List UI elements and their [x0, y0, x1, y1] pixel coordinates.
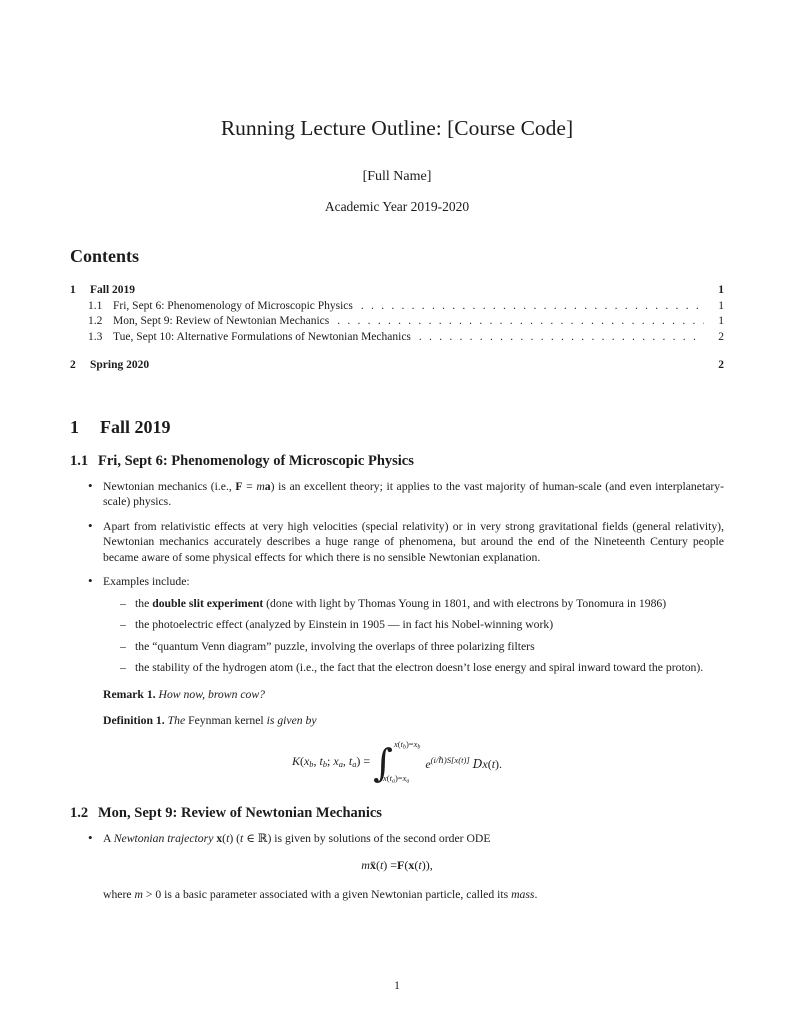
toc-entry-label[interactable]: Spring 2020 [90, 358, 149, 374]
bullet-item: A Newtonian trajectory x(t) (t ∈ ℝ) is g… [70, 831, 724, 847]
integral-upper-limit: x(tb)=xb [394, 739, 420, 752]
toc-entry-number: 1.2 [88, 314, 113, 330]
document-page: Running Lecture Outline: [Course Code] [… [0, 0, 794, 1028]
definition-label: Definition 1. [103, 714, 165, 727]
toc-entry-label[interactable]: Tue, Sept 10: Alternative Formulations o… [113, 330, 411, 346]
sub-bullet-item: the “quantum Venn diagram” puzzle, invol… [70, 639, 724, 655]
integral-limits: x(tb)=xb x(ta)=xa [394, 739, 420, 787]
subsection-heading-1-1: 1.1Fri, Sept 6: Phenomenology of Microsc… [70, 452, 724, 470]
remark-label: Remark 1. [103, 688, 156, 701]
toc-entry-page: 2 [710, 330, 724, 346]
bullet-item: Examples include: [70, 574, 724, 590]
toc-entry-number: 2 [70, 358, 90, 374]
section-title: Fall 2019 [100, 417, 171, 437]
feynman-kernel-formula: K(xb, tb; xa, ta) = ∫ x(tb)=xb x(ta)=xa … [70, 739, 724, 787]
sub-bullet-item: the double slit experiment (done with li… [70, 596, 724, 612]
subsection-number: 1.2 [70, 804, 98, 822]
toc-entry-1-3[interactable]: 1.3 Tue, Sept 10: Alternative Formulatio… [70, 330, 724, 346]
document-date: Academic Year 2019-2020 [70, 199, 724, 215]
bullet-item: Newtonian mechanics (i.e., F = ma) is an… [70, 479, 724, 510]
toc-entry-label[interactable]: Fri, Sept 6: Phenomenology of Microscopi… [113, 299, 353, 315]
bullet-item: Apart from relativistic effects at very … [70, 519, 724, 566]
page-number: 1 [0, 980, 794, 992]
toc-entry-page: 1 [710, 314, 724, 330]
toc-dot-leader [337, 314, 704, 330]
subsection-title: Fri, Sept 6: Phenomenology of Microscopi… [98, 453, 414, 469]
newton-ode-formula: m ẍ(t) = F(x(t)), [70, 858, 724, 874]
toc-entry-number: 1.1 [88, 299, 113, 315]
toc-entry-label[interactable]: Mon, Sept 9: Review of Newtonian Mechani… [113, 314, 329, 330]
remark-body: How now, brown cow? [159, 688, 266, 701]
sub-bullet-item: the photoelectric effect (analyzed by Ei… [70, 617, 724, 633]
formula-rhs: e(i/ℏ)S[x(t)] Dx(t). [425, 753, 502, 772]
document-title: Running Lecture Outline: [Course Code] [70, 116, 724, 141]
section-heading-fall-2019: 1Fall 2019 [70, 417, 724, 438]
toc-entry-label[interactable]: Fall 2019 [90, 283, 135, 299]
definition-body: The Feynman kernel is given by [168, 714, 317, 727]
remark-paragraph: Remark 1. How now, brown cow? [70, 687, 724, 703]
toc-dot-leader [419, 330, 704, 346]
subsection-title: Mon, Sept 9: Review of Newtonian Mechani… [98, 805, 382, 821]
subsection-1-1-content: Newtonian mechanics (i.e., F = ma) is an… [70, 479, 724, 787]
integral-group: ∫ x(tb)=xb x(ta)=xa [373, 739, 420, 787]
toc-dot-leader [361, 299, 704, 315]
toc-entry-number: 1.3 [88, 330, 113, 346]
toc-entry-spring-2020[interactable]: 2 Spring 2020 2 [70, 358, 724, 374]
contents-heading: Contents [70, 246, 724, 267]
document-author: [Full Name] [70, 169, 724, 185]
toc-entry-1-2[interactable]: 1.2 Mon, Sept 9: Review of Newtonian Mec… [70, 314, 724, 330]
definition-paragraph: Definition 1. The Feynman kernel is give… [70, 713, 724, 729]
toc-entry-page: 2 [710, 358, 724, 374]
toc-entry-1-1[interactable]: 1.1 Fri, Sept 6: Phenomenology of Micros… [70, 299, 724, 315]
section-number: 1 [70, 417, 100, 438]
table-of-contents: 1 Fall 2019 1 1.1 Fri, Sept 6: Phenomeno… [70, 283, 724, 374]
toc-entry-number: 1 [70, 283, 90, 299]
subsection-number: 1.1 [70, 452, 98, 470]
subsection-1-2-content: A Newtonian trajectory x(t) (t ∈ ℝ) is g… [70, 831, 724, 903]
integral-lower-limit: x(ta)=xa [383, 773, 420, 786]
subsection-heading-1-2: 1.2Mon, Sept 9: Review of Newtonian Mech… [70, 804, 724, 822]
formula-lhs: K(xb, tb; xa, ta) = [292, 754, 370, 773]
toc-entry-page: 1 [710, 299, 724, 315]
toc-entry-fall-2019[interactable]: 1 Fall 2019 1 [70, 283, 724, 299]
mass-paragraph: where m > 0 is a basic parameter associa… [70, 887, 724, 903]
sub-bullet-item: the stability of the hydrogen atom (i.e.… [70, 660, 724, 676]
toc-entry-page: 1 [710, 283, 724, 299]
